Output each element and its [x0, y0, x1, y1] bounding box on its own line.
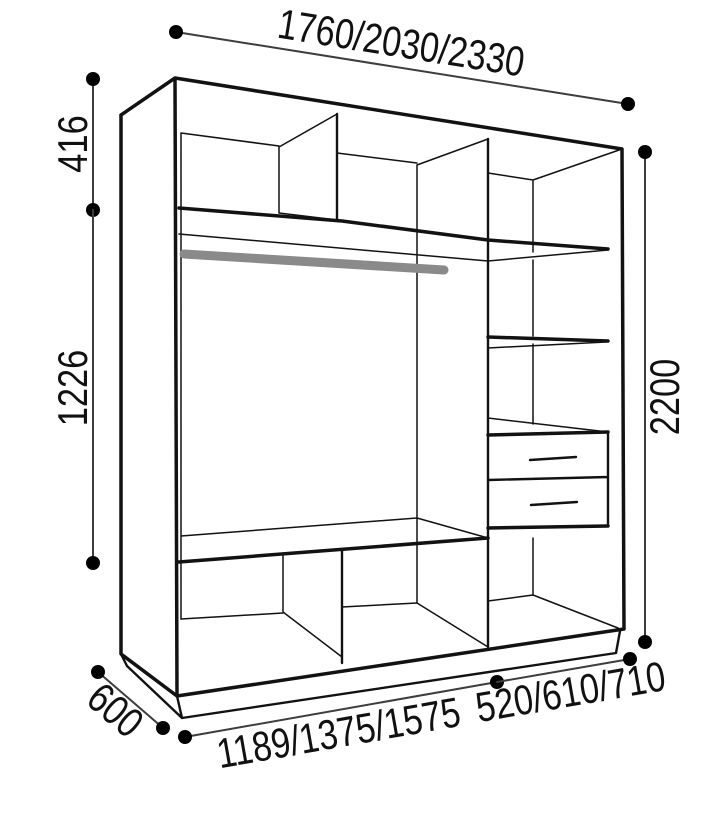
drawer-handle-top	[530, 457, 576, 460]
floor-back-edges	[181, 595, 618, 628]
right-shelf-underside-edge	[488, 342, 606, 348]
dim-right-width: 520/610/710	[472, 652, 669, 732]
dim-left-width-label: 1189/1375/1575	[213, 689, 464, 778]
diagram-canvas: 1760/2030/2330 416 1226 2200	[0, 0, 707, 813]
cabinet-wireframe	[121, 78, 624, 718]
endpoint-dot	[178, 730, 192, 744]
wardrobe-dimension-diagram: 1760/2030/2330 416 1226 2200	[0, 0, 707, 813]
drawer-handle-bottom	[531, 502, 577, 505]
endpoint-dot	[156, 721, 170, 735]
endpoint-dot	[91, 665, 105, 679]
dim-right-width-label: 520/610/710	[472, 653, 669, 732]
right-shelf-front-edge	[488, 337, 608, 341]
top-shelf-front-edge	[179, 208, 608, 249]
endpoint-dot	[638, 145, 652, 159]
endpoint-dot	[621, 97, 635, 111]
dim-middle-height-label: 1226	[50, 350, 97, 427]
hanging-rail	[184, 254, 444, 270]
dimension-annotations: 1760/2030/2330 416 1226 2200	[50, 1, 689, 778]
cabinet-outline	[121, 78, 624, 696]
bottom-divider-edges	[283, 554, 342, 657]
dim-middle-height: 1226	[50, 210, 100, 570]
dim-width-top-label: 1760/2030/2330	[275, 1, 528, 87]
top-divider-edges	[279, 114, 337, 220]
dim-upper-height-label: 416	[50, 115, 97, 172]
dim-left-width: 1189/1375/1575	[178, 675, 504, 778]
dim-total-height-label: 2200	[642, 359, 689, 436]
endpoint-dot	[169, 25, 183, 39]
drawers	[488, 418, 608, 528]
partition-edges	[417, 139, 488, 647]
dim-depth: 600	[78, 665, 170, 747]
dim-upper-height: 416	[50, 72, 100, 217]
dim-depth-label: 600	[78, 674, 152, 747]
drawer-divider-and-side	[488, 432, 608, 526]
lower-shelf-front-edge	[179, 538, 488, 562]
lower-shelf-back-edge	[181, 518, 417, 536]
endpoint-dot	[86, 72, 100, 86]
endpoint-dot	[86, 556, 100, 570]
dim-total-height: 2200	[638, 145, 689, 649]
drawer-top-surface-edge	[488, 418, 608, 432]
endpoint-dot	[638, 635, 652, 649]
dim-width-top: 1760/2030/2330	[169, 1, 635, 111]
